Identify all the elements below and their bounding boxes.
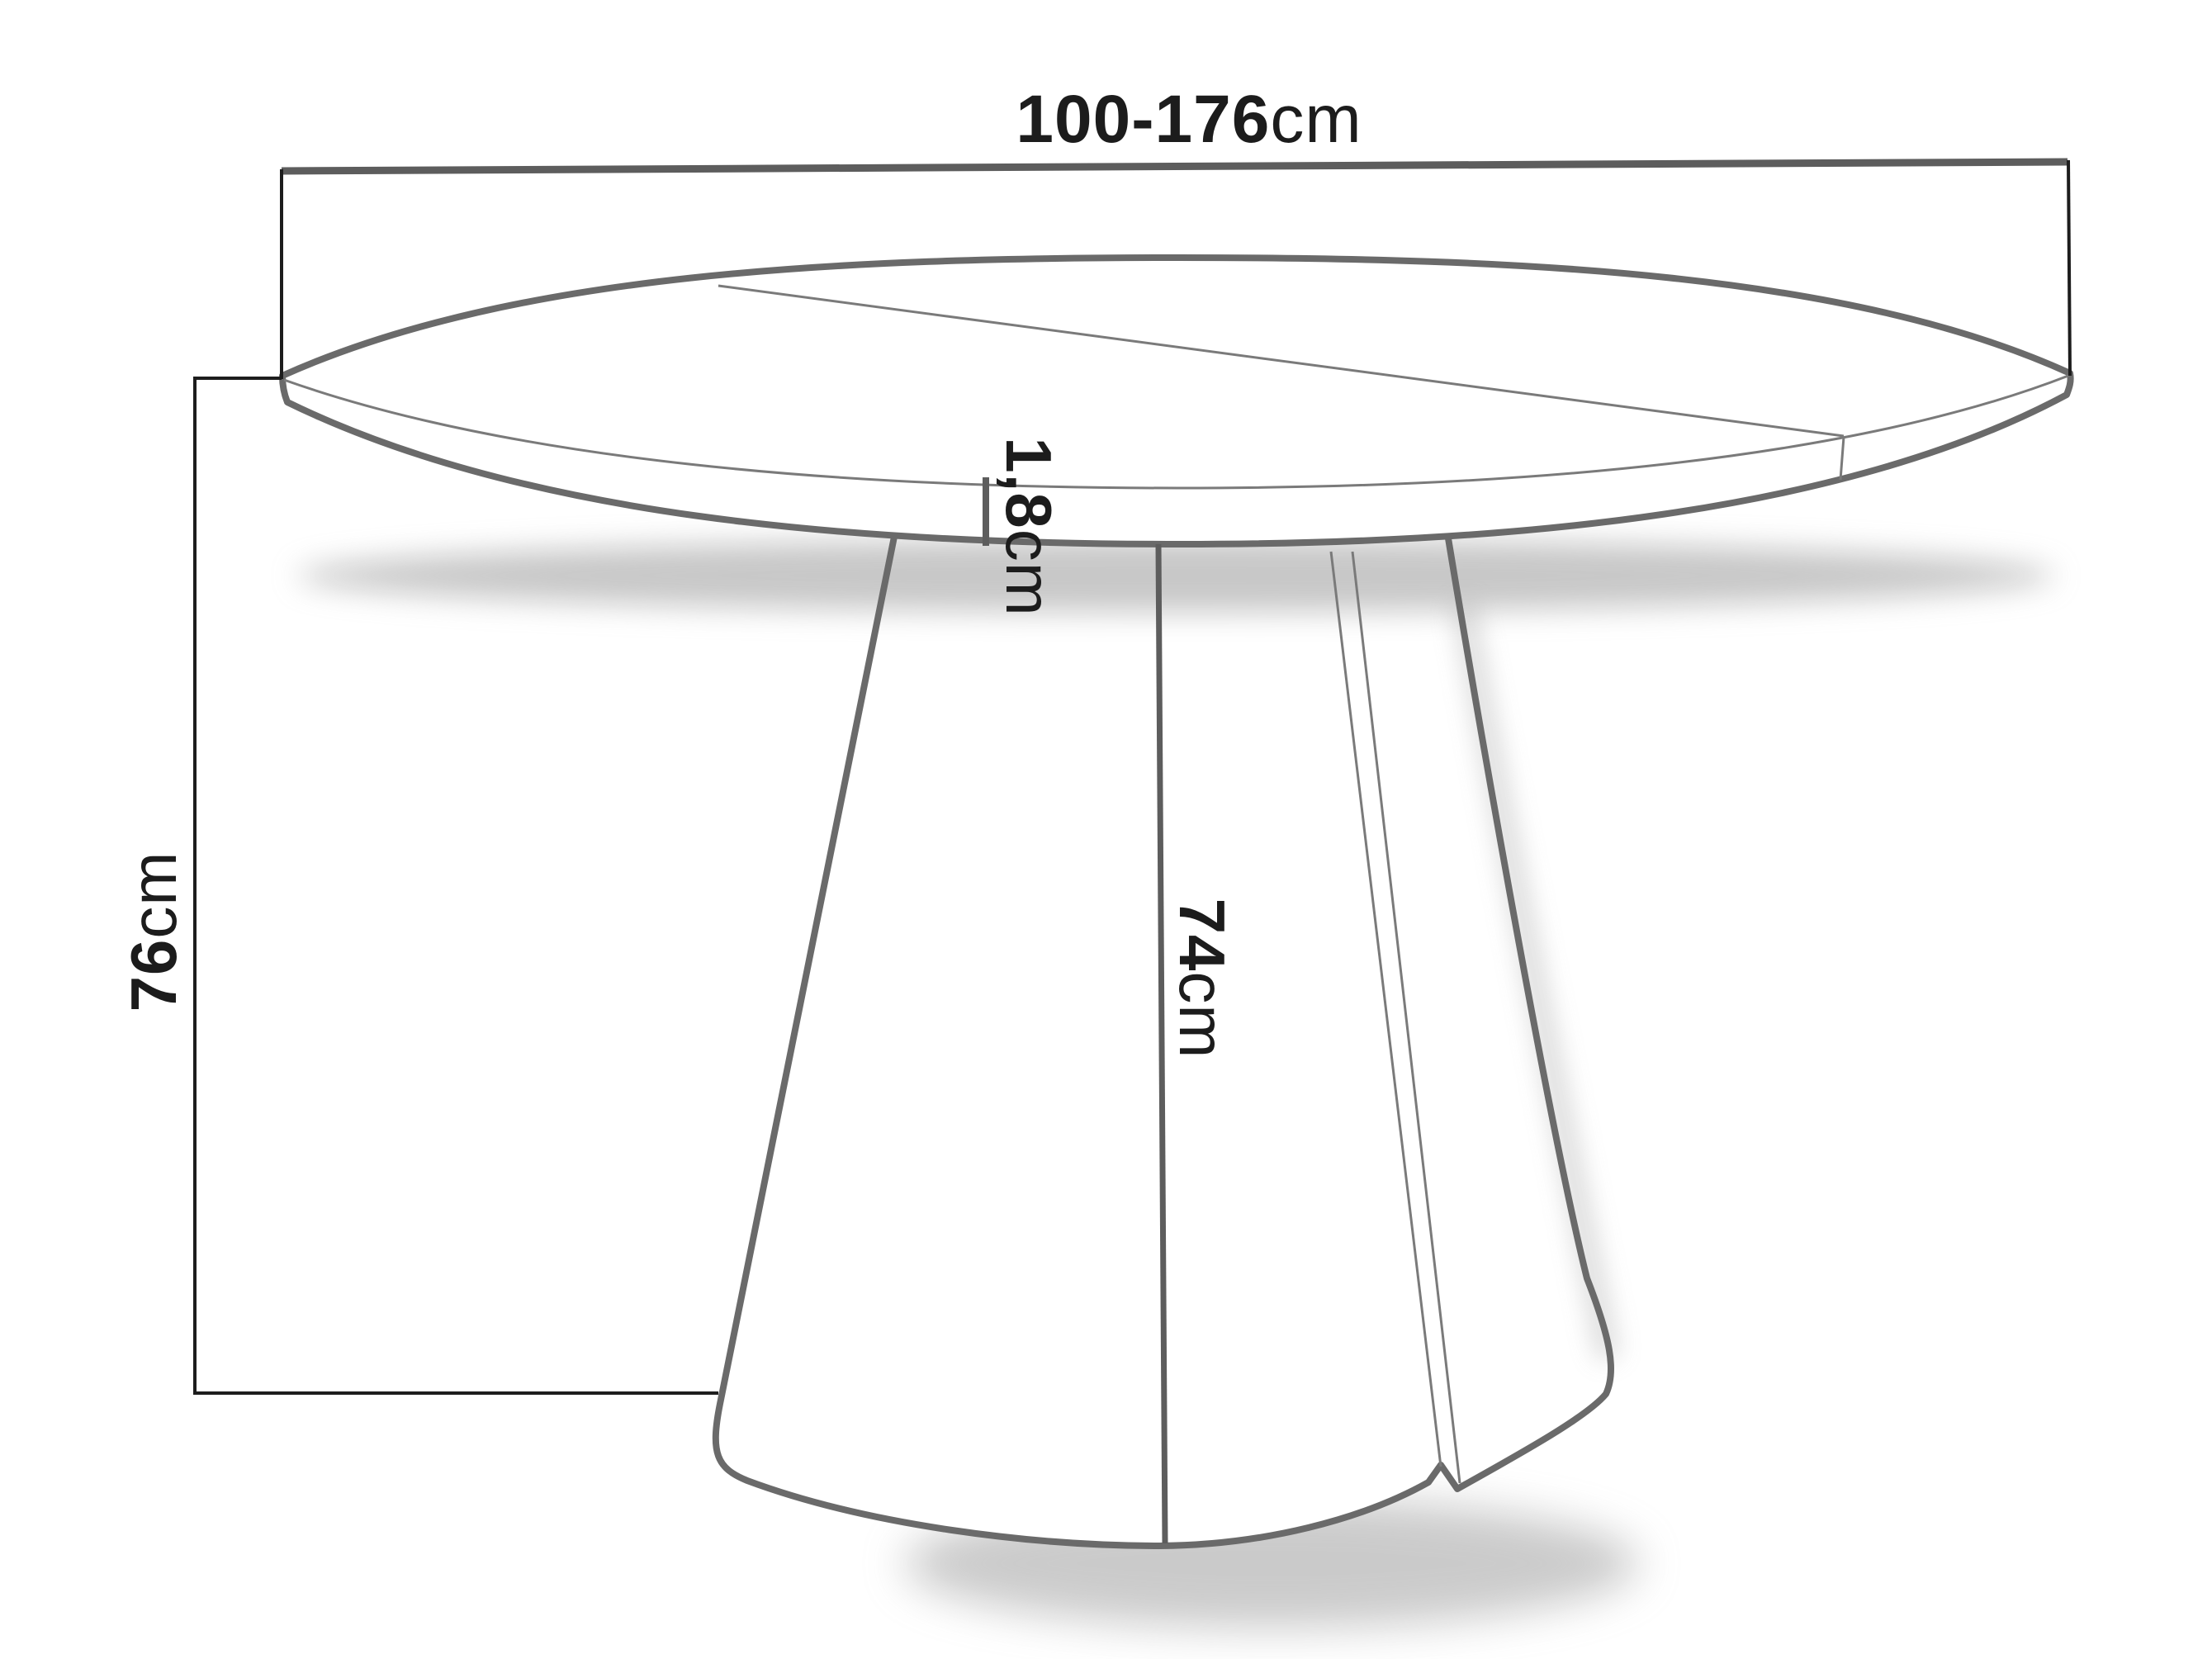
thickness-unit: cm <box>992 529 1065 617</box>
tabletop-outline <box>282 258 2071 544</box>
table-drawing-canvas <box>0 0 2212 1659</box>
thickness-dimension-label: 1,8cm <box>997 437 1061 616</box>
leg-value: 74 <box>1166 898 1239 972</box>
leg-unit: cm <box>1166 971 1239 1059</box>
width-extension-line-right <box>2068 160 2070 376</box>
table-technical-drawing: 100-176cm 76cm 1,8cm 74cm <box>0 0 2212 1659</box>
height-unit: cm <box>117 851 190 939</box>
width-dimension-line <box>282 162 2068 171</box>
under-top-shadow <box>296 539 2055 612</box>
width-unit: cm <box>1270 82 1362 157</box>
width-value: 100-176 <box>1016 82 1270 157</box>
leg-height-dimension-label: 74cm <box>1170 898 1234 1059</box>
height-dimension-label: 76cm <box>121 851 186 1012</box>
width-dimension-label: 100-176cm <box>1016 86 1362 154</box>
thickness-value: 1,8 <box>992 437 1065 529</box>
height-value: 76 <box>117 939 190 1012</box>
